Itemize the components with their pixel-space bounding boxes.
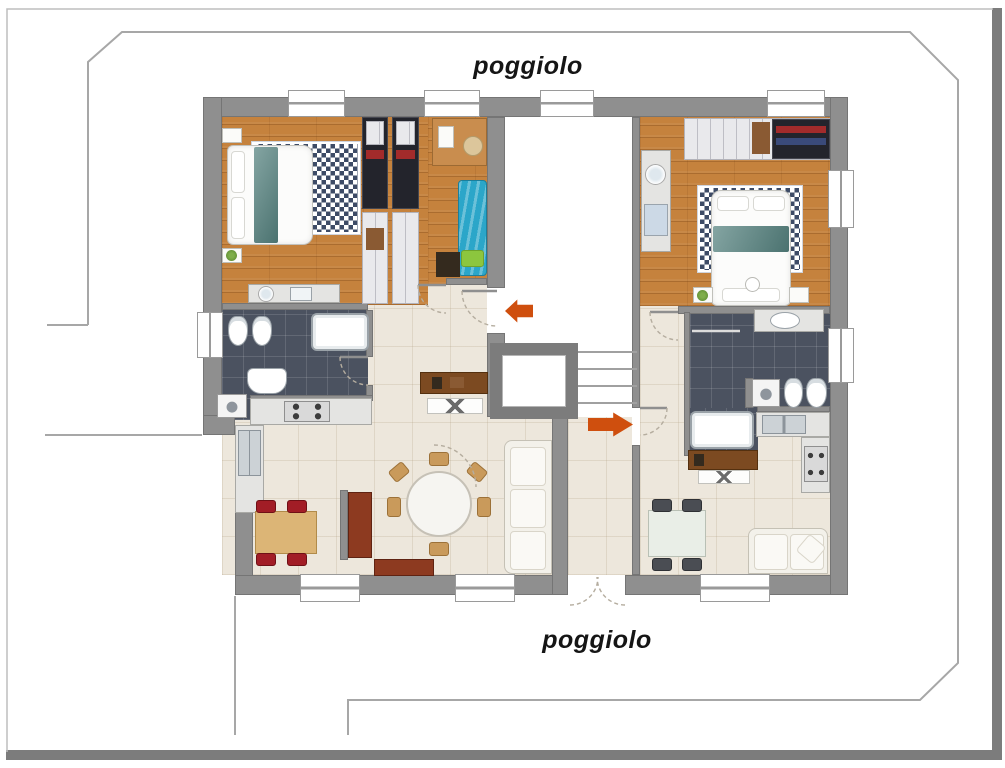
wall-corridor-west: [552, 417, 568, 595]
wardrobe-accent: [366, 150, 384, 159]
stove: [804, 446, 828, 482]
chair-red: [256, 500, 276, 513]
washing-machine: [752, 379, 780, 407]
window-left-bathroom: [197, 312, 223, 358]
chair-dark: [682, 499, 702, 512]
dresser-mirror: [645, 164, 666, 185]
plant: [226, 250, 237, 261]
dresser-art: [644, 204, 668, 236]
balcony-french-door-right-swing: [597, 577, 625, 605]
window-top-2: [424, 90, 480, 117]
hanging-clothes: [776, 126, 826, 133]
bidet: [784, 378, 803, 408]
window-bottom-2: [455, 574, 515, 602]
bidet: [252, 316, 272, 346]
bed-pillow: [231, 197, 245, 239]
hanging-clothes: [776, 138, 826, 145]
hall-bench: [427, 398, 483, 414]
entrance-arrow-left-apartment: [505, 299, 533, 323]
chair-wood: [387, 497, 401, 517]
wardrobe-mirror: [366, 121, 384, 145]
building-cut-bottom: [6, 750, 1002, 760]
nightstand: [789, 287, 809, 303]
sofa-cushion: [510, 447, 546, 486]
hall-bench: [698, 470, 750, 484]
dining-table-right: [648, 510, 706, 557]
chair-dark: [652, 558, 672, 571]
bath-sink-oval: [770, 312, 800, 329]
wall-second-room-south: [446, 278, 487, 285]
wall-right-apartment-stairwell-lower: [632, 445, 640, 575]
desk-item: [438, 126, 454, 148]
wardrobe-mirror: [396, 121, 415, 145]
window-right-bedroom: [828, 170, 854, 228]
toilet: [228, 316, 248, 346]
tv-cabinet: [348, 492, 372, 558]
wardrobe-bag: [752, 122, 770, 154]
wardrobe-accent: [396, 150, 415, 159]
vanity-mirror: [258, 286, 274, 302]
sofa-cushion: [754, 534, 788, 570]
open-shelf: [362, 212, 388, 304]
console-item: [432, 377, 442, 389]
chair-wood: [429, 452, 449, 466]
shelf-item: [366, 228, 384, 250]
console-item: [450, 377, 464, 388]
bed-blanket: [713, 226, 789, 252]
round-dining-table: [406, 471, 472, 537]
stool: [745, 277, 760, 292]
sofa-cushion: [510, 489, 546, 528]
stove: [284, 401, 330, 422]
window-right-bathroom: [828, 328, 854, 383]
window-bottom-right: [700, 574, 770, 602]
wall-left-apartment-stairwell-upper: [487, 117, 505, 288]
balcony-label-bottom: poggiolo: [512, 626, 682, 655]
kitchen-sink: [762, 415, 806, 434]
wall-west-upper: [203, 97, 222, 435]
wall-vanity: [222, 303, 368, 310]
chair-dark: [682, 558, 702, 571]
bed-pillow: [753, 196, 785, 211]
bathtub: [311, 313, 369, 351]
floor-corridor-tile: [568, 417, 632, 575]
bed-pillow: [717, 196, 749, 211]
sofa-cushion: [510, 531, 546, 570]
nightstand: [222, 128, 242, 143]
bed-pillow: [231, 151, 245, 193]
nightstand-dark: [436, 252, 460, 277]
bed-blanket: [254, 147, 278, 243]
kitchen-sink: [238, 430, 261, 476]
plant: [697, 290, 708, 301]
chair-red: [287, 553, 307, 566]
chair-wood: [429, 542, 449, 556]
bathtub: [690, 411, 754, 449]
balcony-label-top: poggiolo: [443, 52, 613, 81]
balcony-french-door-left-swing: [570, 577, 598, 605]
chair-wood: [477, 497, 491, 517]
window-top-1: [288, 90, 345, 117]
bathroom-sink: [247, 368, 287, 394]
console-item: [694, 454, 704, 466]
floor-plan: poggiolo poggiolo: [0, 0, 1005, 768]
side-desk: [374, 559, 434, 576]
wall-tv-stub: [340, 490, 348, 560]
toilet: [806, 378, 827, 408]
building-cut-right: [992, 8, 1002, 760]
window-top-right: [767, 90, 825, 117]
window-top-stairwell: [540, 90, 594, 117]
washing-machine: [217, 394, 247, 418]
wall-south-left-apartment: [235, 575, 568, 595]
chair-red: [256, 553, 276, 566]
open-shelf: [392, 212, 419, 304]
dining-table-small: [255, 511, 317, 554]
chair-red: [287, 500, 307, 513]
desk-chair: [463, 136, 483, 156]
chair-dark: [652, 499, 672, 512]
window-bottom-1: [300, 574, 360, 602]
elevator-car: [502, 355, 566, 407]
vanity-sink: [290, 287, 312, 301]
single-bed-pillow: [461, 250, 484, 267]
wall-right-apartment-stairwell-upper: [632, 117, 640, 408]
wall-west-step: [203, 415, 235, 435]
